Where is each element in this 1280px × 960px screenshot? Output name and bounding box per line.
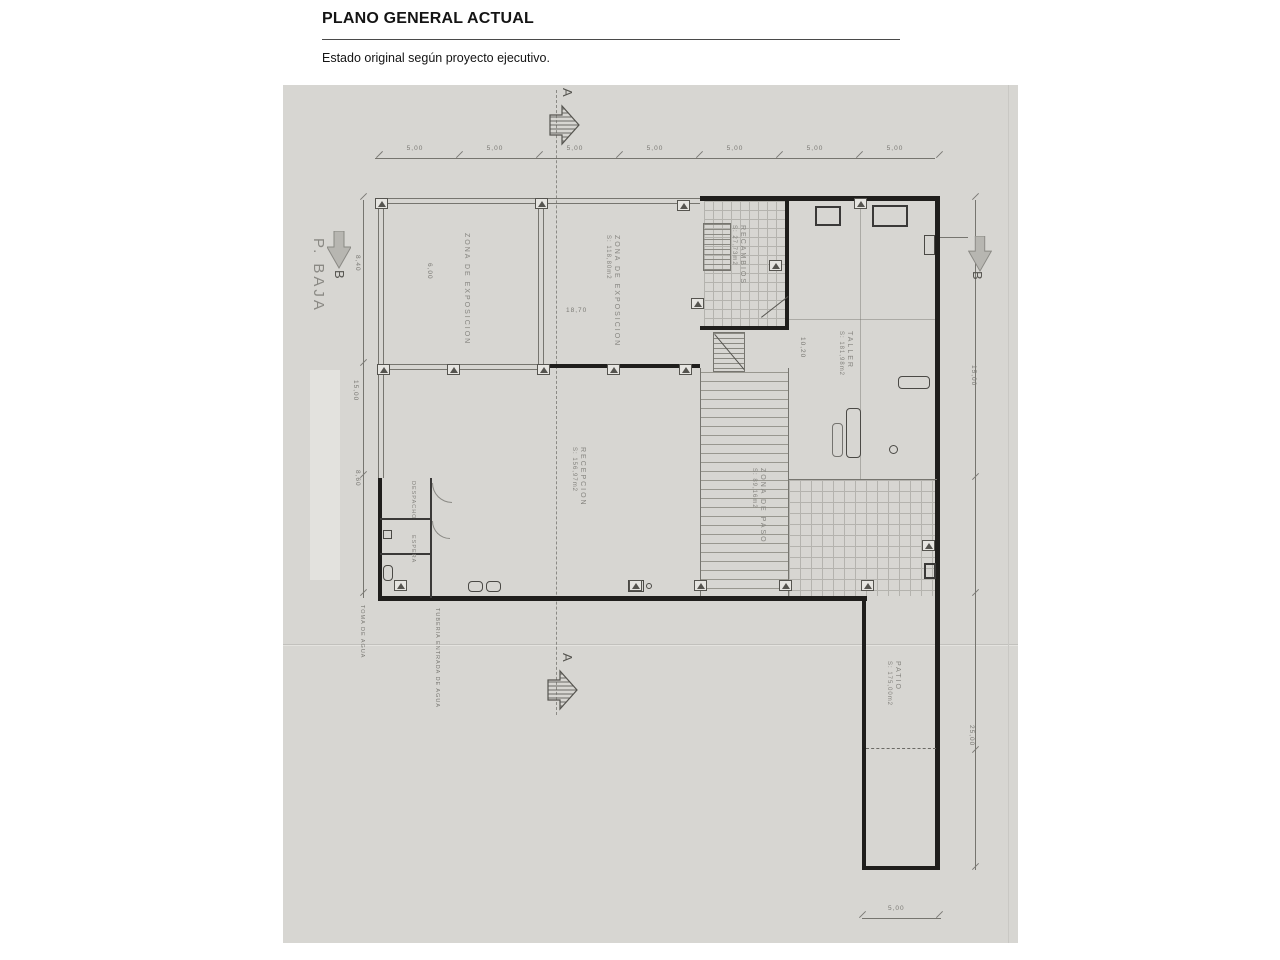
floor-plan-scan: 5,00 5,00 5,00 5,00 5,00 5,00 5,00 8,40 … (283, 85, 1018, 943)
room-label-exposicion-right: ZONA DE EXPOSICION S: 118,80m2 (604, 235, 620, 347)
room-name: ZONA DE EXPOSICION (611, 235, 620, 347)
dim-line-bottom (862, 918, 941, 919)
column-symbol (679, 364, 692, 375)
column-symbol (861, 580, 874, 591)
scan-white-patch (310, 370, 340, 580)
dim-tick (859, 911, 866, 918)
section-b-arrow-right (968, 236, 992, 272)
dim-bottom-5-00: 5,00 (888, 905, 905, 912)
wall-patio-bottom (862, 866, 940, 870)
dim-tick (936, 911, 943, 918)
despacho-divider-1 (380, 518, 432, 520)
room-label-exposicion-left: ZONA DE EXPOSICION (461, 233, 470, 345)
dim-line-top (375, 158, 935, 159)
entrance-door-symbol (468, 581, 483, 592)
taller-equipment-box (872, 205, 908, 227)
room-name: ZONA DE EXPOSICION (461, 233, 470, 345)
dim-tick (376, 151, 383, 158)
patio-dashed-line (866, 748, 936, 749)
taller-round-fixture (889, 445, 898, 454)
wall-left-light (378, 198, 384, 478)
dim-tick (456, 151, 463, 158)
wall-recambios-right (785, 196, 789, 330)
room-name: RECEPCION (577, 447, 586, 507)
wall-expo-divider (538, 198, 544, 364)
title-rule (322, 39, 900, 40)
wall-left-dark (378, 478, 382, 601)
column-symbol (607, 364, 620, 375)
page-subtitle: Estado original según proyecto ejecutivo… (322, 51, 550, 65)
room-label-recepcion: RECEPCION S: 156,97m2 (570, 447, 586, 507)
dim-tick (856, 151, 863, 158)
dim-tick (616, 151, 623, 158)
taller-equipment-box (815, 206, 841, 226)
dim-value: 5,00 (775, 145, 855, 152)
dim-labels-top: 5,00 5,00 5,00 5,00 5,00 5,00 5,00 (375, 145, 935, 152)
dim-line-left (363, 200, 364, 598)
dim-left-8-40: 8,40 (354, 255, 361, 272)
dim-right-25-00: 25,00 (968, 725, 975, 746)
dim-interior-18-70: 18,70 (566, 307, 587, 314)
paso-floor-grid (789, 480, 935, 596)
column-symbol (854, 198, 867, 209)
door-arc-espera (432, 521, 450, 539)
column-symbol (535, 198, 548, 209)
wall-mid-dark (540, 364, 700, 368)
section-b-label-left: B (332, 270, 347, 281)
room-name: ESPERA (409, 535, 416, 563)
taller-lift-vertical (846, 408, 861, 458)
dim-tick (536, 151, 543, 158)
dim-tick (936, 151, 943, 158)
room-name: RECAMBIOS (737, 225, 746, 285)
room-label-despacho: DESPACHO (409, 481, 416, 519)
dim-tick (696, 151, 703, 158)
toilet-fixture (383, 565, 393, 581)
dim-value: 5,00 (615, 145, 695, 152)
room-label-taller: TALLER S: 181,98m2 (837, 331, 853, 376)
floor-label: P. BAJA (310, 238, 327, 313)
room-name: DESPACHO (409, 481, 416, 519)
room-area: S: 27,73m2 (730, 225, 738, 285)
room-label-paso: ZONA DE PASO S: 89,16m2 (750, 468, 766, 544)
dim-line-right (975, 200, 976, 870)
room-area: S: 118,80m2 (604, 235, 612, 347)
room-label-patio: PATIO S: 175,00m2 (885, 661, 901, 706)
wall-right-dark (935, 196, 940, 753)
dim-tick (972, 193, 979, 200)
section-b-stem-right (940, 237, 968, 238)
room-name: TALLER (844, 331, 853, 376)
paso-wall-box (924, 563, 936, 579)
entrance-door-symbol (486, 581, 501, 592)
dim-interior-6-00: 6,00 (426, 263, 433, 280)
section-a-arrow-top (549, 103, 581, 147)
column-symbol (769, 260, 782, 271)
column-symbol (922, 540, 935, 551)
door-arc-despacho (432, 483, 452, 503)
column-symbol (691, 298, 704, 309)
section-a-label-top: A (560, 88, 575, 99)
dim-value: 5,00 (375, 145, 455, 152)
paper-edge (1008, 85, 1009, 943)
wall-bottom-dark (378, 596, 867, 601)
column-symbol (375, 198, 388, 209)
section-a-label-bottom: A (560, 653, 575, 664)
despacho-right-wall (430, 478, 432, 598)
section-b-arrow-left (327, 231, 351, 269)
section-b-label-right: B (970, 271, 985, 282)
dim-interior-10-20: 10,20 (799, 337, 806, 358)
dim-value: 5,00 (855, 145, 935, 152)
column-symbol (677, 200, 690, 211)
dim-value: 5,00 (455, 145, 535, 152)
entrance-dot-symbol (646, 583, 652, 589)
sink-fixture (383, 530, 392, 539)
annotation-tuberia: TUBERIA ENTRADA DE AGUA (434, 608, 440, 708)
taller-lift-horizontal (898, 376, 930, 389)
taller-faint-line (789, 319, 935, 320)
dim-right-15-00: 15,00 (970, 365, 977, 386)
column-symbol (779, 580, 792, 591)
column-symbol (694, 580, 707, 591)
column-symbol (394, 580, 407, 591)
wall-patio-right (935, 753, 940, 870)
page-title: PLANO GENERAL ACTUAL (322, 10, 534, 28)
section-line-a (556, 90, 557, 715)
dim-tick (360, 193, 367, 200)
column-symbol (447, 364, 460, 375)
section-a-arrow-bottom (547, 668, 579, 712)
taller-wall-box (924, 235, 935, 255)
column-symbol (377, 364, 390, 375)
despacho-divider-2 (380, 553, 432, 555)
room-area: S: 156,97m2 (570, 447, 578, 507)
room-area: S: 181,98m2 (837, 331, 845, 376)
column-symbol (629, 580, 642, 591)
room-label-recambios: RECAMBIOS S: 27,73m2 (730, 225, 746, 285)
annotation-toma-agua: TOMA DE AGUA (359, 605, 365, 658)
room-name: ZONA DE PASO (757, 468, 766, 544)
taller-lift-vertical (832, 423, 843, 457)
room-area: S: 89,16m2 (750, 468, 758, 544)
scan-fold-line (283, 644, 1018, 645)
dim-left-15-00: 15,00 (352, 380, 359, 401)
room-label-espera: ESPERA (409, 535, 416, 563)
dim-tick (776, 151, 783, 158)
dim-value: 5,00 (695, 145, 775, 152)
wall-recambios-bottom (700, 326, 789, 330)
wall-patio-left (862, 596, 866, 870)
room-name: PATIO (892, 661, 901, 706)
column-symbol (537, 364, 550, 375)
dim-left-8-60: 8,60 (354, 470, 361, 487)
corridor-stair-hatch (701, 372, 788, 596)
recambios-stair (703, 223, 731, 271)
room-area: S: 175,00m2 (885, 661, 893, 706)
